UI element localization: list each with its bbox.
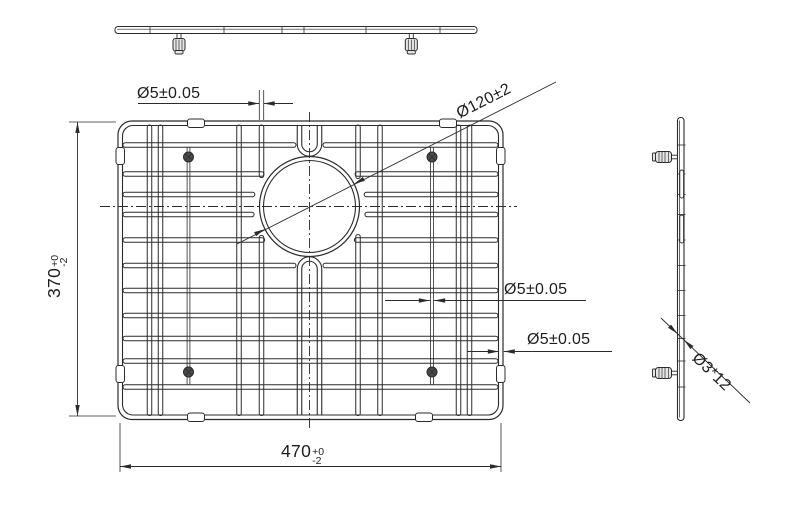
wire-diameter-label-top: Ø5±0.05 xyxy=(137,84,200,103)
drawing-svg xyxy=(0,0,800,516)
height-dimension-value: 370 xyxy=(44,268,64,298)
width-dimension-value: 470 xyxy=(281,441,311,461)
height-tolerance-minus: -2 xyxy=(60,255,70,267)
width-dimension-label: 470+0-2 xyxy=(281,441,324,467)
technical-drawing-canvas: Ø5±0.05 Ø120±2 Ø5±0.05 Ø5±0.05 Ø3*12 370… xyxy=(0,0,800,516)
width-tolerance-minus: -2 xyxy=(312,457,324,467)
height-dimension-label: 370+0-2 xyxy=(44,255,70,298)
wire-diameter-label-mid: Ø5±0.05 xyxy=(504,280,567,299)
wire-diameter-label-frame: Ø5±0.05 xyxy=(527,330,590,349)
